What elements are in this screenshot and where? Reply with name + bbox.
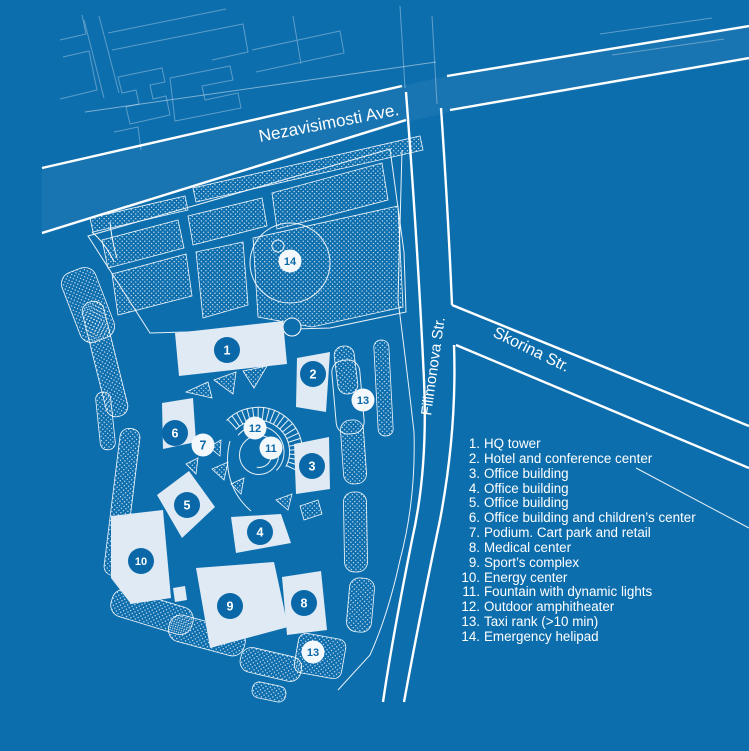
legend-item: 10.Energy center [450,571,696,586]
legend-item-label: Podium. Cart park and retail [484,526,651,541]
svg-text:13: 13 [357,395,369,407]
legend-item-label: Medical center [484,541,571,556]
legend-item-number: 3. [450,467,480,482]
legend-item: 5.Office building [450,496,696,511]
legend-item-label: Fountain with dynamic lights [484,585,652,600]
legend-item-label: Outdoor amphitheater [484,600,614,615]
legend-item-number: 2. [450,452,480,467]
svg-text:14: 14 [284,256,297,268]
legend-item-label: Emergency helipad [484,630,599,645]
map-marker-5: 5 [174,492,200,518]
legend-item-label: Office building and children’s center [484,511,696,526]
legend-item: 11.Fountain with dynamic lights [450,585,696,600]
svg-text:6: 6 [172,427,179,441]
map-marker-2: 2 [300,361,326,387]
map-marker-8: 8 [291,590,317,616]
svg-text:8: 8 [301,597,308,611]
map-legend: 1.HQ tower2.Hotel and conference center3… [450,437,696,645]
legend-item: 12.Outdoor amphitheater [450,600,696,615]
legend-item: 7.Podium. Cart park and retail [450,526,696,541]
legend-item-label: Office building [484,467,569,482]
legend-item: 3.Office building [450,467,696,482]
legend-item-number: 7. [450,526,480,541]
legend-item-label: Sport’s complex [484,556,579,571]
map-marker-9: 9 [217,593,243,619]
legend-item: 2.Hotel and conference center [450,452,696,467]
legend-item-number: 9. [450,556,480,571]
svg-text:7: 7 [200,439,207,453]
legend-item-number: 4. [450,482,480,497]
map-marker-11: 11 [260,437,283,460]
svg-text:10: 10 [135,556,147,568]
legend-item-label: HQ tower [484,437,541,452]
park-pond [283,318,301,336]
legend-item-label: Office building [484,496,569,511]
legend-item: 4.Office building [450,482,696,497]
legend-item: 1.HQ tower [450,437,696,452]
legend-item-number: 1. [450,437,480,452]
legend-item-number: 14. [450,630,480,645]
legend-item: 8.Medical center [450,541,696,556]
svg-text:4: 4 [257,526,264,540]
svg-text:11: 11 [265,443,277,455]
legend-item-number: 5. [450,496,480,511]
legend-item-label: Energy center [484,571,567,586]
legend-item-number: 13. [450,615,480,630]
map-marker-13: 13 [352,389,375,412]
map-marker-10: 10 [128,548,154,574]
building-10-annex [173,586,187,602]
legend-item-number: 11. [450,585,480,600]
svg-text:9: 9 [227,600,234,614]
map-marker-1: 1 [214,337,240,363]
svg-text:12: 12 [249,423,261,435]
map-marker-6: 6 [162,420,188,446]
svg-text:2: 2 [310,368,317,382]
svg-text:3: 3 [309,460,316,474]
map-marker-14: 14 [279,250,302,273]
svg-text:13: 13 [307,647,319,659]
svg-text:5: 5 [184,499,191,513]
site-plan-map: 123456789101112131314 Nezavisimosti Ave.… [0,0,749,751]
legend-item-number: 6. [450,511,480,526]
legend-item: 9.Sport’s complex [450,556,696,571]
legend-item: 6.Office building and children’s center [450,511,696,526]
legend-item: 14.Emergency helipad [450,630,696,645]
map-marker-7: 7 [192,434,215,457]
svg-text:1: 1 [224,344,231,358]
legend-item-label: Office building [484,482,569,497]
map-marker-4: 4 [247,519,273,545]
map-marker-13: 13 [302,641,325,664]
map-marker-12: 12 [244,417,267,440]
legend-item-label: Taxi rank (>10 min) [484,615,598,630]
map-marker-3: 3 [299,453,325,479]
legend-item-number: 12. [450,600,480,615]
legend-item-number: 10. [450,571,480,586]
legend-item: 13.Taxi rank (>10 min) [450,615,696,630]
legend-item-number: 8. [450,541,480,556]
legend-item-label: Hotel and conference center [484,452,652,467]
